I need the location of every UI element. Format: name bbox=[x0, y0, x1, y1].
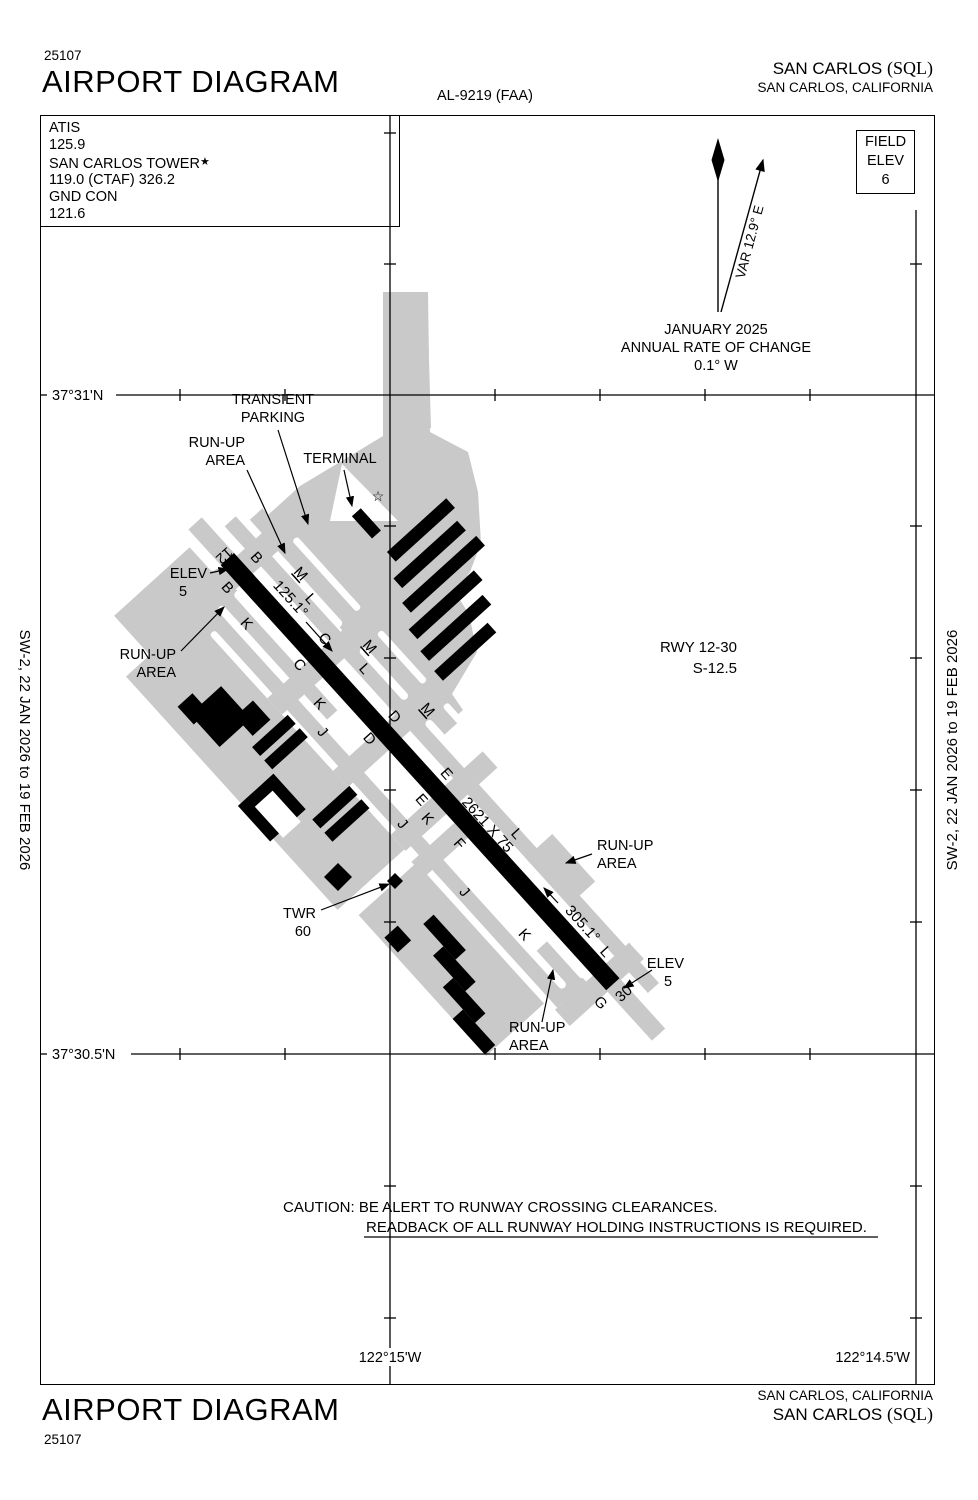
lon-left-label: 122°15'W bbox=[359, 1350, 422, 1366]
map-label: ELEV bbox=[170, 566, 207, 582]
map-label: 60 bbox=[295, 924, 311, 940]
lon-right-label: 122°14.5'W bbox=[835, 1350, 910, 1366]
map-label: T​ERMINAL bbox=[303, 451, 376, 467]
variation-label: VAR 12.9° E bbox=[733, 204, 767, 280]
airport-diagram-svg: 37°31'N 37°30.5'N 122°15'W 122°14.5'W TR… bbox=[0, 0, 978, 1500]
airport-diagram-page: { "header": { "chart_number": "25107", "… bbox=[0, 0, 978, 1500]
graticule bbox=[40, 115, 935, 1385]
caution-line2: READBACK OF ALL RUNWAY HOLDING INSTRUCTI… bbox=[366, 1219, 867, 1236]
map-label: AREA bbox=[509, 1038, 549, 1054]
effective-dates-left: SW-2, 22 JAN 2026 to 19 FEB 2026 bbox=[16, 630, 33, 871]
caution-line1: CAUTION: BE ALERT TO RUNWAY CROSSING CLE… bbox=[283, 1199, 718, 1216]
runway-strength-note: S-12.5 bbox=[693, 660, 737, 677]
compass-rose: VAR 12.9° E JANUARY 2025 ANNUAL RATE OF … bbox=[621, 138, 811, 374]
map-label: ☆ bbox=[372, 488, 385, 504]
map-label: RUN-UP bbox=[120, 647, 176, 663]
map-label: TWR bbox=[283, 906, 316, 922]
lat-top-label: 37°31'N bbox=[52, 388, 103, 404]
map-label: AREA bbox=[597, 856, 637, 872]
map-label: PARKING bbox=[241, 410, 305, 426]
true-north-arrow-icon bbox=[712, 138, 725, 182]
map-label: AREA bbox=[206, 453, 246, 469]
map-label: 5 bbox=[179, 584, 187, 600]
map-label: RUN-UP bbox=[597, 838, 653, 854]
map-label: ELEV bbox=[647, 956, 684, 972]
lat-bottom-label: 37°30.5'N bbox=[52, 1047, 115, 1063]
map-label: TRANSIENT bbox=[232, 392, 314, 408]
variation-date: JANUARY 2025 bbox=[664, 322, 767, 338]
effective-dates-right: SW-2, 22 JAN 2026 to 19 FEB 2026 bbox=[944, 630, 961, 871]
map-label: RUN-UP bbox=[509, 1020, 565, 1036]
variation-rate-value: 0.1° W bbox=[694, 358, 738, 374]
variation-rate-label: ANNUAL RATE OF CHANGE bbox=[621, 340, 811, 356]
map-label: 5 bbox=[664, 974, 672, 990]
map-label: RUN-UP bbox=[189, 435, 245, 451]
map-label: AREA bbox=[137, 665, 177, 681]
runway-id-note: RWY 12-30 bbox=[660, 639, 737, 656]
